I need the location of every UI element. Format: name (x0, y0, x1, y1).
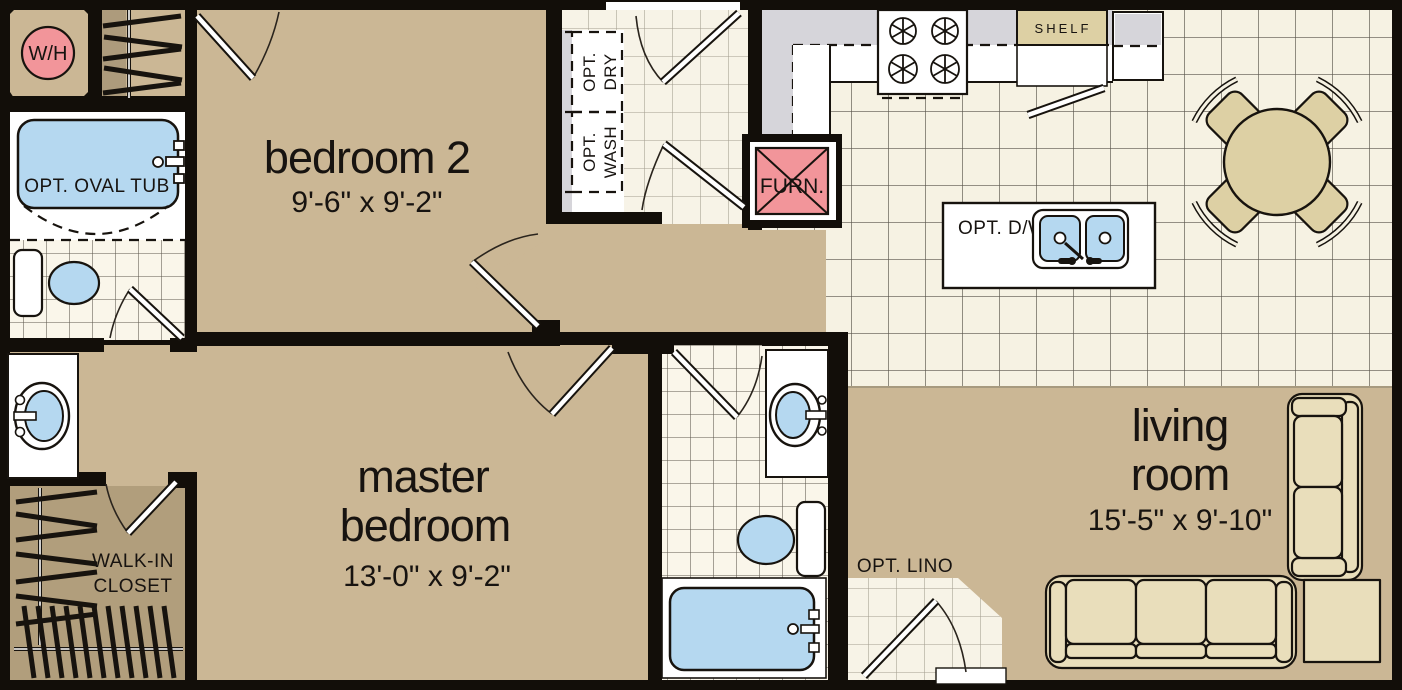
washer-label-2: WASH (601, 126, 620, 178)
wall-segment (185, 8, 197, 98)
tub-tap (174, 174, 184, 183)
living-room-name-2: room (1131, 449, 1230, 500)
floor-plan-page: OPT. DRY OPT. WASH (0, 0, 1402, 690)
bedroom2-dims: 9'-6" x 9'-2" (291, 186, 442, 219)
dryer-label-2: DRY (601, 53, 620, 90)
sofa (1046, 576, 1296, 668)
wall-segment (170, 338, 197, 352)
furnace-label: FURN. (760, 175, 824, 198)
wall-segment (185, 472, 197, 682)
dining-table (1224, 109, 1330, 215)
master-vanity (8, 354, 78, 478)
master-bedroom-name-2: bedroom (340, 500, 511, 551)
living-room-dims: 15'-5" x 9'-10" (1088, 504, 1273, 537)
wall-segment (196, 332, 536, 346)
oval-tub-label: OPT. OVAL TUB (24, 176, 170, 197)
furnace: FURN. (742, 134, 842, 228)
bathtub-second (662, 578, 826, 678)
wall-segment (828, 332, 848, 682)
laundry-exterior-threshold (606, 2, 740, 10)
lino-exterior-threshold (936, 668, 1006, 684)
tub-tap (174, 141, 184, 150)
living-room-name-1: living (1132, 400, 1229, 451)
tub-spout (166, 157, 184, 166)
wall-segment (748, 8, 762, 136)
dryer-label-1: OPT. (580, 52, 599, 92)
wall-segment (8, 96, 188, 112)
shelf-label: SHELF (1035, 21, 1092, 36)
floor-plan: OPT. DRY OPT. WASH (0, 0, 1402, 690)
wall-segment (8, 338, 104, 352)
stove (878, 10, 967, 98)
hallway-floor (546, 224, 826, 332)
wall-segment (612, 332, 674, 354)
master-bedroom-name-1: master (357, 451, 490, 502)
wall-segment (648, 345, 662, 682)
left-base-counter (793, 45, 830, 138)
loveseat (1288, 394, 1362, 580)
wall-segment (546, 8, 562, 224)
wall-segment (0, 680, 1402, 690)
vanity-second (766, 350, 828, 477)
water-heater: W/H (22, 27, 74, 79)
wall-segment (185, 96, 197, 340)
washer-label-1: OPT. (580, 132, 599, 172)
lino-label: OPT. LINO (857, 556, 953, 577)
double-sink (1033, 210, 1128, 268)
end-table (1304, 580, 1380, 662)
water-heater-label: W/H (29, 43, 68, 65)
wall-segment (546, 212, 662, 224)
walk-in-closet-label-1: WALK-IN (92, 551, 174, 572)
tub-drain (153, 157, 163, 167)
wall-segment (1392, 0, 1402, 690)
refrigerator (1113, 12, 1163, 80)
bedroom2-name: bedroom 2 (264, 132, 470, 183)
master-bedroom-dims: 13'-0" x 9'-2" (343, 560, 511, 593)
walk-in-closet-label-2: CLOSET (93, 576, 172, 597)
kitchen-island: OPT. D/W (943, 203, 1155, 288)
left-counter-strip (762, 25, 793, 136)
wall-segment (88, 8, 102, 100)
